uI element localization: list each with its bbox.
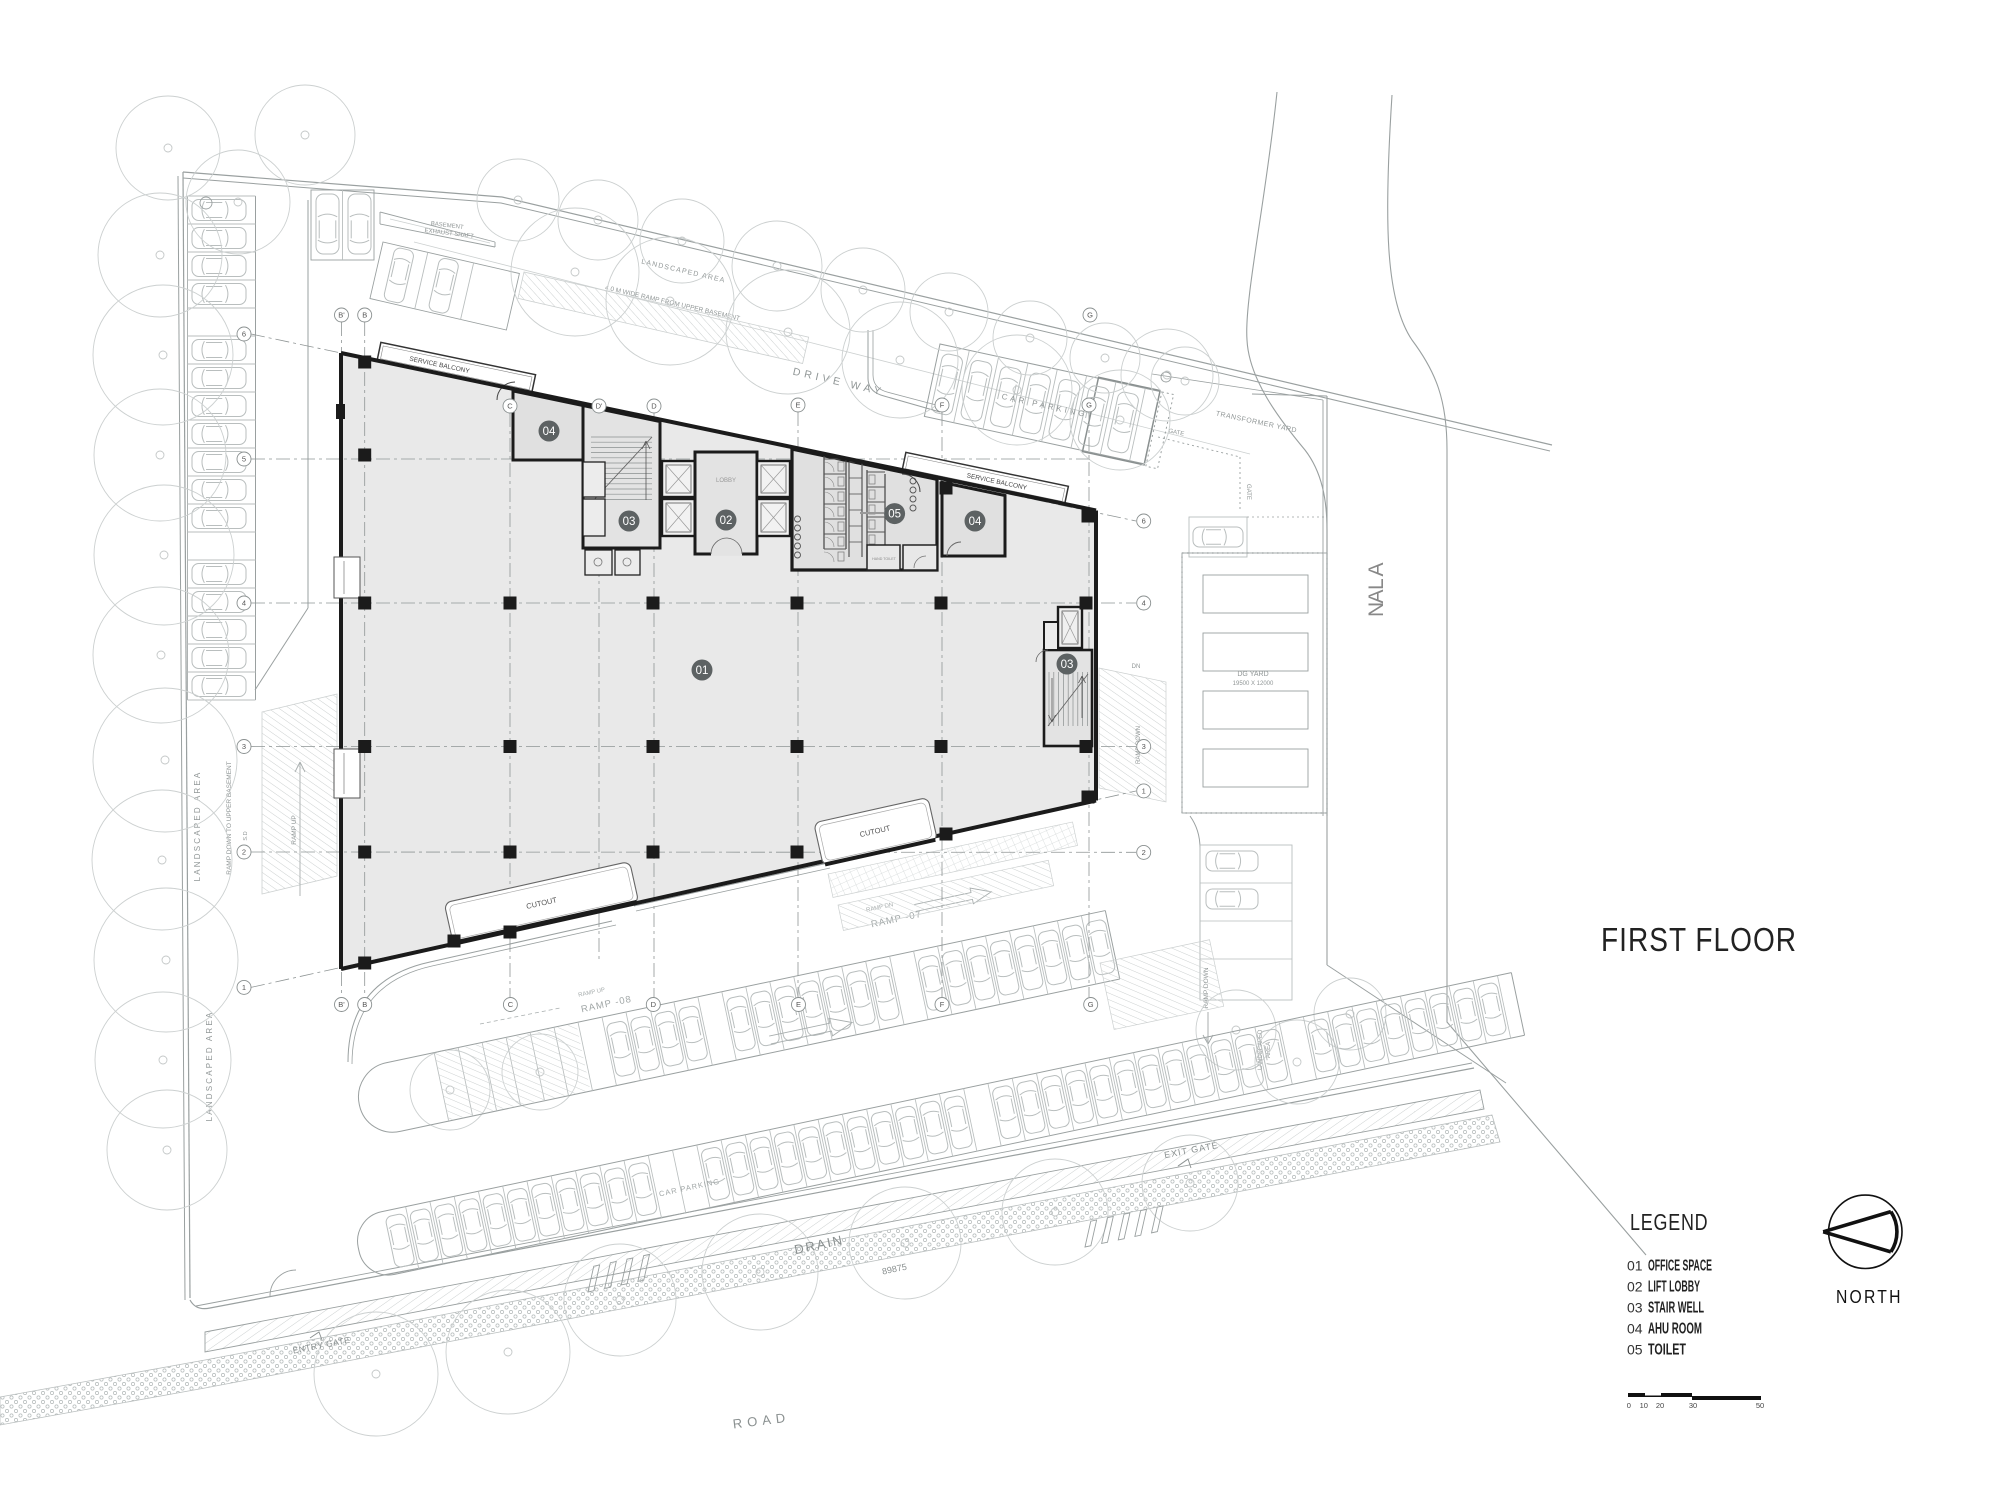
svg-text:04: 04 [543, 426, 556, 438]
svg-text:50: 50 [1756, 1401, 1764, 1410]
svg-text:02: 02 [1627, 1279, 1643, 1295]
svg-text:RAMP UP: RAMP UP [291, 815, 298, 845]
svg-text:A: A [1365, 589, 1388, 603]
svg-text:03: 03 [623, 516, 636, 528]
svg-text:1: 1 [1142, 787, 1146, 796]
svg-text:NORTH: NORTH [1836, 1286, 1903, 1308]
svg-text:1: 1 [242, 983, 246, 992]
svg-text:5: 5 [242, 455, 246, 464]
svg-text:B': B' [338, 1000, 345, 1009]
svg-text:LIFT LOBBY: LIFT LOBBY [1648, 1279, 1700, 1296]
svg-text:A: A [1365, 562, 1388, 576]
svg-text:05: 05 [1627, 1342, 1643, 1358]
svg-text:6: 6 [242, 330, 246, 339]
svg-text:F: F [940, 401, 945, 410]
svg-text:3: 3 [242, 742, 246, 751]
svg-text:30: 30 [1689, 1401, 1697, 1410]
svg-text:E: E [795, 401, 800, 410]
svg-text:TOILET: TOILET [1648, 1342, 1686, 1359]
svg-text:01: 01 [696, 665, 709, 677]
svg-text:L: L [1365, 578, 1388, 590]
svg-text:GATE: GATE [1245, 484, 1251, 500]
svg-text:G: G [1086, 401, 1092, 410]
svg-text:D: D [651, 1000, 657, 1009]
svg-text:C: C [507, 402, 513, 411]
svg-text:DN: DN [1132, 664, 1141, 670]
svg-text:STAIR WELL: STAIR WELL [1648, 1300, 1704, 1317]
svg-text:F: F [940, 1000, 945, 1009]
svg-text:03: 03 [1627, 1300, 1643, 1316]
svg-text:01: 01 [1627, 1258, 1643, 1274]
svg-text:AHU ROOM: AHU ROOM [1648, 1321, 1702, 1338]
svg-text:E: E [796, 1000, 801, 1009]
svg-text:S.D: S.D [243, 831, 249, 840]
svg-text:HAND TOILET: HAND TOILET [872, 557, 896, 561]
svg-text:02: 02 [720, 515, 733, 527]
svg-text:D: D [651, 402, 657, 411]
svg-text:0: 0 [1627, 1401, 1631, 1410]
svg-text:20: 20 [1656, 1401, 1664, 1410]
svg-text:B': B' [338, 311, 345, 320]
svg-text:DG YARD: DG YARD [1237, 671, 1268, 678]
svg-text:OFFICE SPACE: OFFICE SPACE [1648, 1258, 1712, 1275]
svg-text:19500 X 12000: 19500 X 12000 [1233, 681, 1274, 687]
svg-text:FIRST FLOOR: FIRST FLOOR [1601, 922, 1797, 959]
svg-text:05: 05 [888, 509, 901, 521]
svg-text:2: 2 [242, 848, 246, 857]
svg-text:4: 4 [242, 599, 246, 608]
svg-text:2: 2 [1142, 848, 1146, 857]
svg-text:G: G [1087, 311, 1093, 320]
svg-text:3: 3 [1142, 742, 1146, 751]
svg-text:10: 10 [1640, 1401, 1648, 1410]
svg-text:4: 4 [1142, 599, 1146, 608]
svg-text:6: 6 [1142, 517, 1146, 526]
svg-text:04: 04 [969, 516, 982, 528]
svg-text:B: B [362, 311, 367, 320]
svg-text:03: 03 [1061, 659, 1074, 671]
svg-text:LOBBY: LOBBY [716, 478, 736, 484]
svg-text:B: B [362, 1000, 367, 1009]
svg-text:D': D' [596, 402, 603, 411]
svg-text:G: G [1088, 1000, 1094, 1009]
svg-text:C: C [508, 1000, 514, 1009]
svg-text:LEGEND: LEGEND [1630, 1210, 1708, 1236]
svg-text:04: 04 [1627, 1321, 1643, 1337]
